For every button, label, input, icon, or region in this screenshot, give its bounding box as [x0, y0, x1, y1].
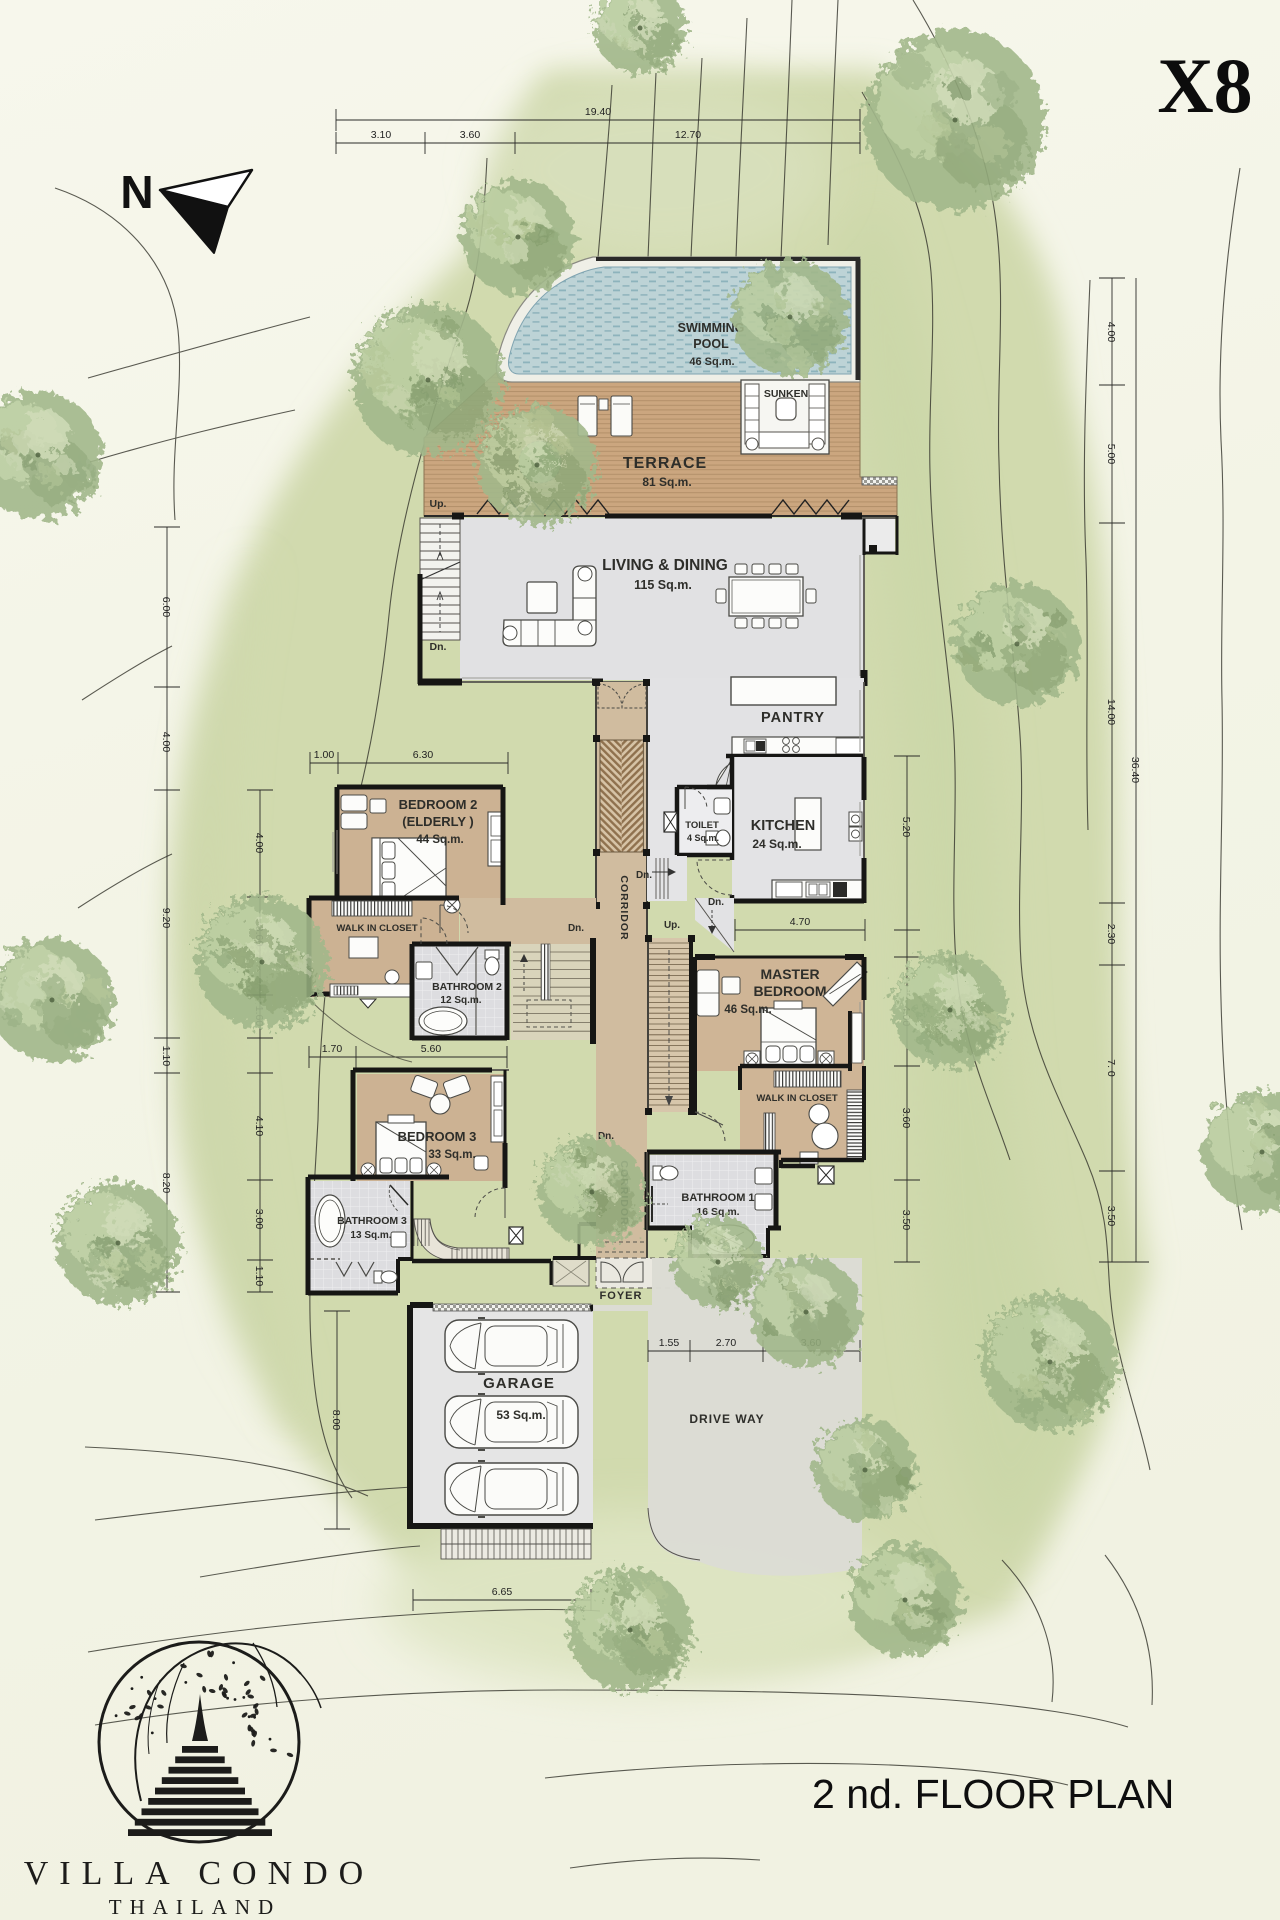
- svg-text:1.70: 1.70: [322, 1043, 343, 1055]
- svg-text:1.10: 1.10: [253, 1266, 265, 1287]
- svg-text:1.00: 1.00: [314, 749, 335, 761]
- svg-text:12 Sq.m.: 12 Sq.m.: [440, 995, 481, 1006]
- svg-text:VILLA CONDO: VILLA CONDO: [24, 1855, 374, 1892]
- svg-text:PANTRY: PANTRY: [761, 710, 825, 726]
- svg-text:4.00: 4.00: [160, 732, 172, 753]
- svg-text:5.60: 5.60: [421, 1043, 442, 1055]
- svg-text:24 Sq.m.: 24 Sq.m.: [752, 837, 801, 851]
- svg-text:8.20: 8.20: [160, 1173, 172, 1194]
- svg-text:1.10: 1.10: [160, 1046, 172, 1067]
- svg-text:LIVING & DINING: LIVING & DINING: [602, 557, 728, 574]
- svg-text:12.70: 12.70: [675, 129, 701, 141]
- svg-text:36.40: 36.40: [1129, 757, 1141, 783]
- svg-text:BEDROOM 2: BEDROOM 2: [399, 797, 478, 812]
- svg-text:19.40: 19.40: [585, 106, 611, 118]
- svg-text:1.55: 1.55: [659, 1337, 680, 1349]
- svg-text:KITCHEN: KITCHEN: [751, 818, 815, 834]
- svg-text:WALK IN CLOSET: WALK IN CLOSET: [336, 923, 417, 934]
- svg-text:WALK IN CLOSET: WALK IN CLOSET: [756, 1093, 837, 1104]
- svg-text:Up.: Up.: [664, 920, 680, 931]
- svg-text:DRIVE WAY: DRIVE WAY: [689, 1412, 764, 1426]
- svg-text:53 Sq.m.: 53 Sq.m.: [496, 1408, 545, 1422]
- svg-text:(ELDERLY ): (ELDERLY ): [402, 814, 474, 829]
- svg-text:2.70: 2.70: [716, 1337, 737, 1349]
- svg-text:X8: X8: [1157, 42, 1252, 129]
- svg-text:13 Sq.m.: 13 Sq.m.: [350, 1230, 391, 1241]
- svg-text:4.70: 4.70: [790, 916, 811, 928]
- svg-text:7. 0: 7. 0: [1105, 1059, 1117, 1077]
- svg-text:6.30: 6.30: [413, 749, 434, 761]
- svg-text:44 Sq.m.: 44 Sq.m.: [416, 834, 463, 846]
- svg-text:6.00: 6.00: [160, 597, 172, 618]
- svg-text:Dn.: Dn.: [568, 923, 584, 934]
- svg-text:BEDROOM: BEDROOM: [753, 983, 826, 999]
- svg-text:MASTER: MASTER: [760, 966, 819, 982]
- svg-text:3.50: 3.50: [1105, 1206, 1117, 1227]
- svg-text:BATHROOM 1: BATHROOM 1: [681, 1192, 754, 1204]
- svg-text:4.00: 4.00: [253, 833, 265, 854]
- svg-text:3.60: 3.60: [460, 129, 481, 141]
- svg-text:POOL: POOL: [693, 337, 729, 351]
- svg-text:THAILAND: THAILAND: [109, 1895, 281, 1919]
- svg-text:BATHROOM 3: BATHROOM 3: [337, 1215, 407, 1227]
- svg-text:81 Sq.m.: 81 Sq.m.: [642, 475, 691, 489]
- svg-text:6.65: 6.65: [492, 1586, 513, 1598]
- svg-text:2.30: 2.30: [1105, 924, 1117, 945]
- svg-text:2 nd. FLOOR PLAN: 2 nd. FLOOR PLAN: [812, 1771, 1174, 1817]
- svg-text:3.50: 3.50: [900, 1210, 912, 1231]
- svg-text:33 Sq.m.: 33 Sq.m.: [428, 1149, 475, 1161]
- svg-text:FOYER: FOYER: [600, 1290, 643, 1302]
- svg-text:SUNKEN: SUNKEN: [764, 388, 808, 400]
- svg-text:3.60: 3.60: [900, 1108, 912, 1129]
- svg-text:TOILET: TOILET: [685, 820, 719, 831]
- svg-text:9.20: 9.20: [160, 908, 172, 929]
- svg-text:46 Sq.m.: 46 Sq.m.: [689, 356, 734, 368]
- svg-text:TERRACE: TERRACE: [623, 455, 707, 472]
- svg-text:BEDROOM 3: BEDROOM 3: [398, 1129, 477, 1144]
- svg-text:3.10: 3.10: [371, 129, 392, 141]
- svg-text:14.00: 14.00: [1105, 699, 1117, 725]
- svg-text:Dn.: Dn.: [636, 870, 652, 881]
- svg-text:4 Sq.m.: 4 Sq.m.: [687, 833, 719, 843]
- svg-text:5.00: 5.00: [1105, 444, 1117, 465]
- svg-text:115 Sq.m.: 115 Sq.m.: [634, 578, 692, 592]
- svg-text:BATHROOM 2: BATHROOM 2: [432, 981, 502, 993]
- svg-text:Up.: Up.: [430, 498, 447, 510]
- svg-text:4.00: 4.00: [1105, 322, 1117, 343]
- svg-text:4.10: 4.10: [253, 1116, 265, 1137]
- svg-text:46 Sq.m.: 46 Sq.m.: [724, 1004, 771, 1016]
- svg-text:Dn.: Dn.: [430, 641, 447, 653]
- svg-text:3.00: 3.00: [253, 1209, 265, 1230]
- svg-text:CORRIDOR: CORRIDOR: [618, 875, 630, 940]
- svg-text:8.00: 8.00: [330, 1410, 342, 1431]
- svg-text:GARAGE: GARAGE: [483, 1375, 555, 1392]
- svg-text:5.20: 5.20: [900, 817, 912, 838]
- svg-text:Dn.: Dn.: [708, 897, 724, 908]
- svg-text:N: N: [120, 166, 153, 218]
